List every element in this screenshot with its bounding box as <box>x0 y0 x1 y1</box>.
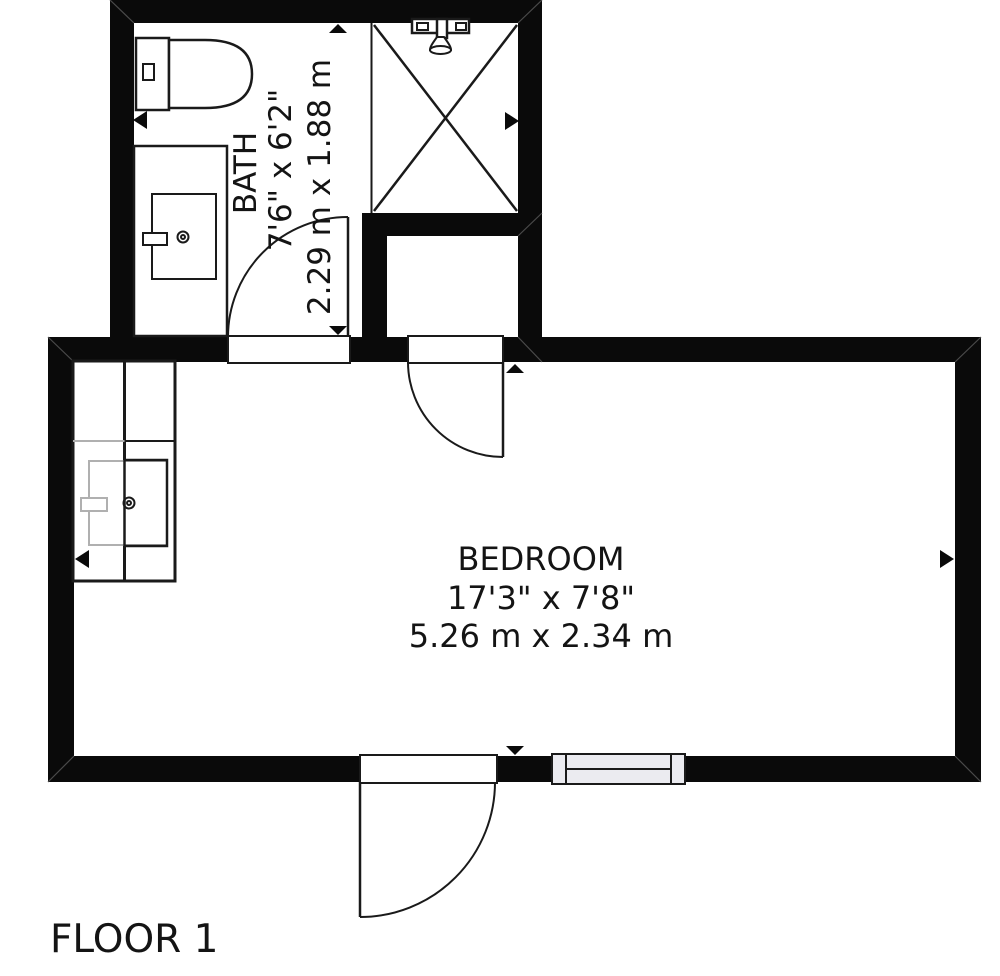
floor-plan: BATH 7'6" x 6'2" 2.29 m x 1.88 m BEDROOM… <box>0 0 1000 976</box>
measure-arrow-up-icon <box>506 364 524 373</box>
walls <box>48 0 981 782</box>
floor-plan-page: BATH 7'6" x 6'2" 2.29 m x 1.88 m BEDROOM… <box>0 0 1000 976</box>
bedroom-dimensions-imperial: 17'3" x 7'8" <box>447 579 635 617</box>
measure-arrow-left-icon <box>133 111 147 129</box>
measure-arrow-right-icon <box>940 550 954 568</box>
bedroom-top-wall <box>48 337 981 362</box>
measure-arrow-left-icon <box>75 550 89 568</box>
entry-door-arc <box>360 782 495 917</box>
bedroom-sink-vanity-icon <box>73 361 175 581</box>
bedroom-room-label: BEDROOM <box>457 540 624 578</box>
bedroom-faucet-handle <box>81 498 107 511</box>
measure-arrow-down-icon <box>329 326 347 335</box>
shower-bar-detail <box>456 23 466 30</box>
shower-bar-detail <box>417 23 428 30</box>
bath-left-wall <box>110 0 134 337</box>
shower-stall-icon <box>372 19 518 213</box>
measure-arrow-right-icon <box>505 112 519 130</box>
window-icon <box>552 754 685 784</box>
measure-arrow-down-icon <box>506 746 524 755</box>
bath-faucet-handle <box>143 233 167 245</box>
closet-door-opening <box>408 336 503 363</box>
bedroom-dimensions-metric: 5.26 m x 2.34 m <box>409 617 673 655</box>
shower-bottom-wall <box>362 213 542 236</box>
shower-bell-lip <box>430 46 451 54</box>
toilet-icon <box>136 38 252 110</box>
closet-door-arc <box>408 362 503 457</box>
bedroom-left-wall <box>48 337 74 782</box>
bath-sink-vanity-icon <box>134 146 227 336</box>
entry-door-opening <box>360 755 497 783</box>
measure-arrow-up-icon <box>329 24 347 33</box>
bath-dimensions-imperial: 7'6" x 6'2" <box>263 89 299 252</box>
entry-door-swing-icon <box>360 782 495 917</box>
toilet-flush-button <box>143 64 154 80</box>
bath-top-wall <box>110 0 542 23</box>
shower-head-icon <box>412 19 469 54</box>
bath-right-wall <box>518 0 542 362</box>
bedroom-bottom-wall <box>48 756 981 782</box>
bath-door-opening <box>228 336 350 363</box>
shower-stem <box>437 19 447 38</box>
floor-title: FLOOR 1 <box>50 917 218 962</box>
toilet-bowl <box>169 40 252 108</box>
closet-door-swing-icon <box>408 362 503 457</box>
bath-dimensions-metric: 2.29 m x 1.88 m <box>302 59 338 315</box>
bedroom-right-wall <box>955 337 981 782</box>
bath-room-label: BATH <box>228 132 264 214</box>
